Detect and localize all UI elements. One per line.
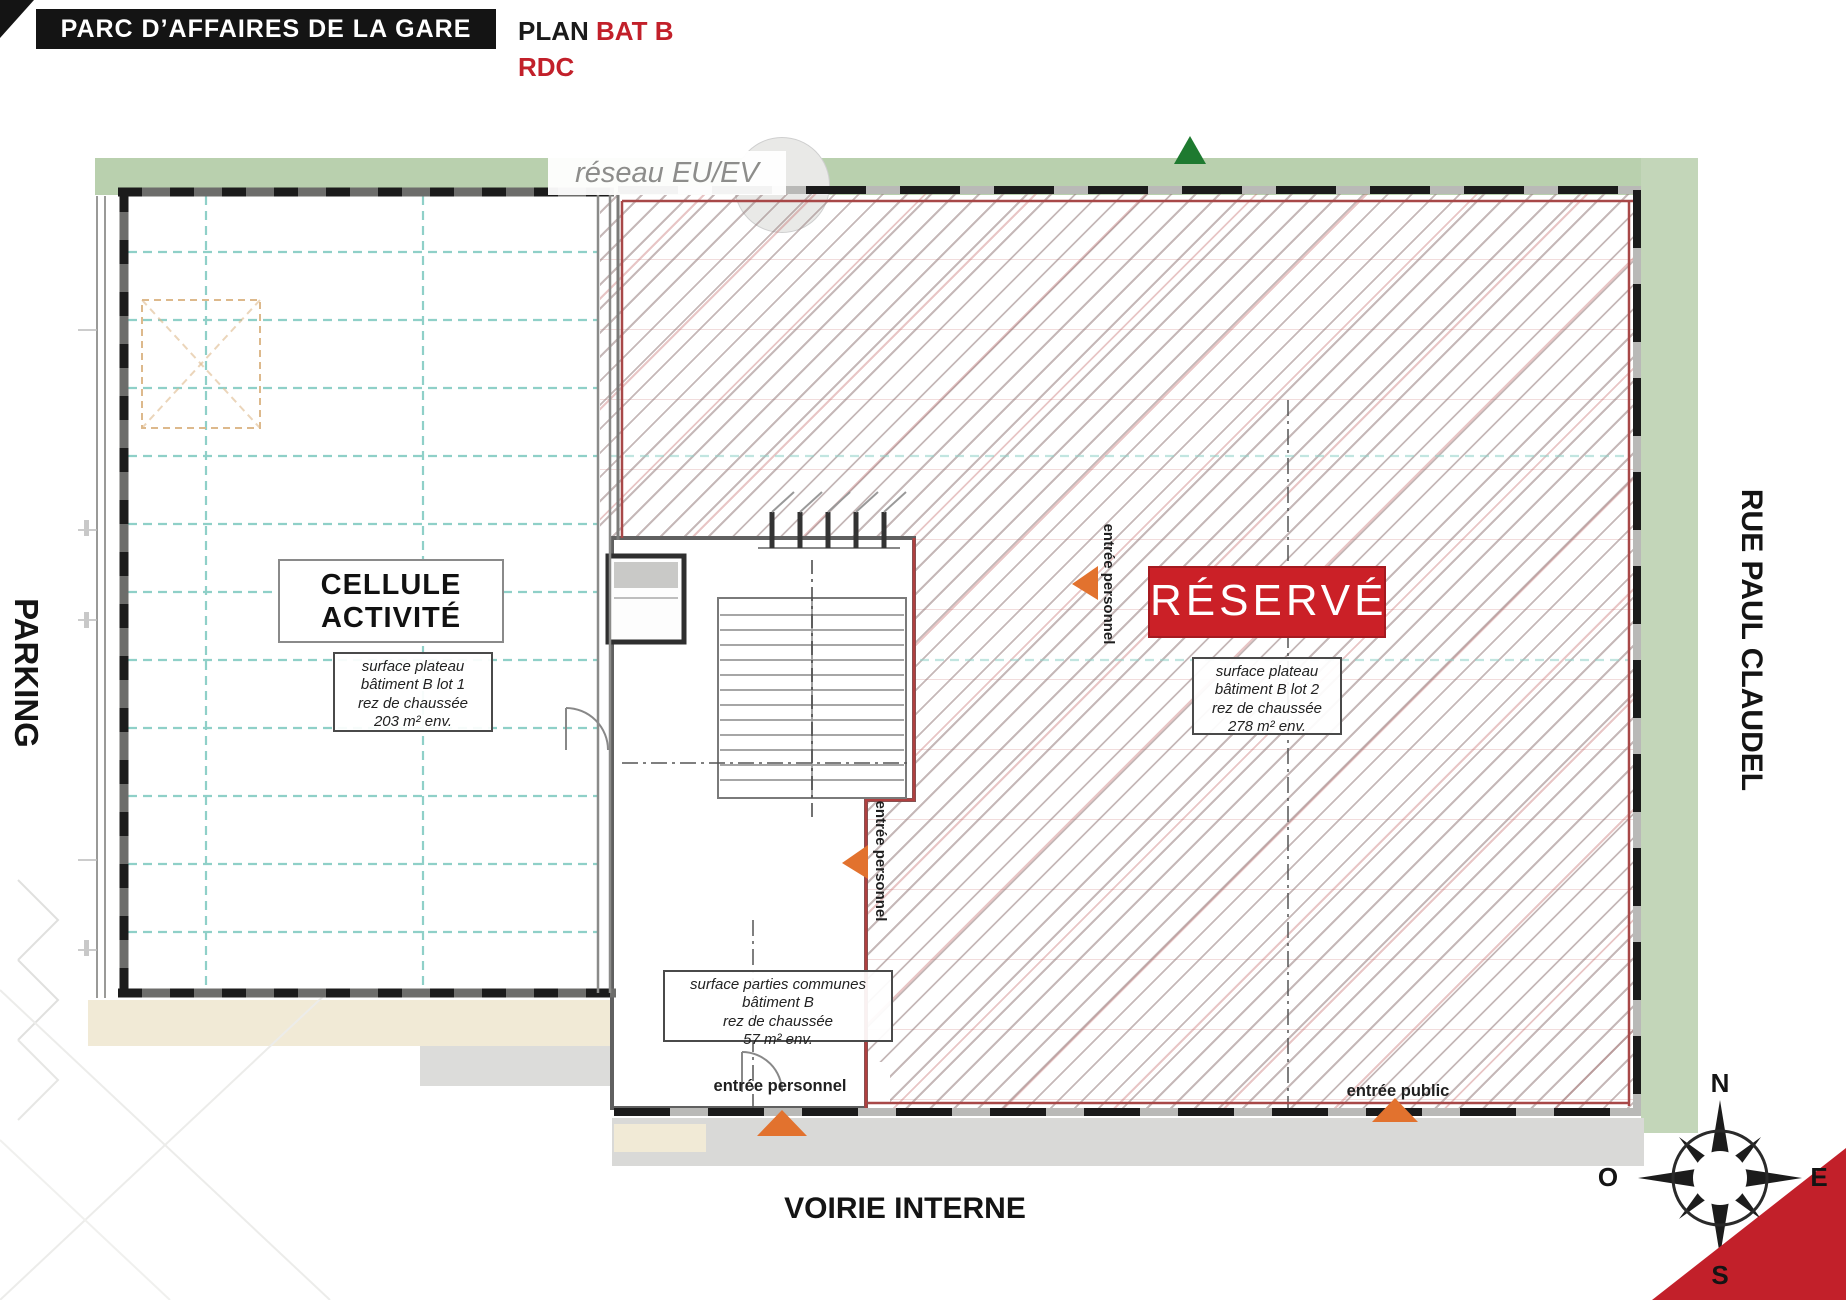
lot2-surface-line: rez de chaussée <box>1194 700 1340 718</box>
level-label: RDC <box>518 52 574 83</box>
plan-title: PLAN BAT B <box>518 16 674 47</box>
lot2-reserved-badge: RÉSERVÉ <box>1148 566 1386 638</box>
pavement-step <box>420 1046 615 1086</box>
lot2-surface-line: surface plateau <box>1194 663 1340 681</box>
skylight-marker <box>142 300 260 428</box>
parking-marks <box>0 196 330 1300</box>
lot1-title-line2: ACTIVITÉ <box>280 602 502 635</box>
project-title-banner: PARC D’AFFAIRES DE LA GARE <box>36 9 496 49</box>
staircase <box>718 560 906 820</box>
compass-east: E <box>1801 1162 1837 1190</box>
lot1-surface-box: surface plateau bâtiment B lot 1 rez de … <box>333 652 493 732</box>
walkway-strip-left <box>88 1000 612 1046</box>
lot2-surface-box: surface plateau bâtiment B lot 2 rez de … <box>1192 657 1342 735</box>
plan-word: PLAN <box>518 16 596 46</box>
lot2-surface-line: 278 m² env. <box>1194 718 1340 736</box>
elevator-shaft <box>608 556 684 642</box>
lot1-surface-line: rez de chaussée <box>335 695 491 713</box>
commons-surface-line: surface parties communes <box>665 976 891 994</box>
dimension-mark <box>84 612 89 628</box>
entrance-label-staff-upper: entrée personnel <box>1091 512 1117 656</box>
street-label-parking: PARKING <box>11 575 45 771</box>
dimension-mark <box>84 940 89 956</box>
lot1-surface-line: surface plateau <box>335 658 491 676</box>
lot1-surface-line: 203 m² env. <box>335 713 491 731</box>
entrance-label-staff-lower: entrée personnel <box>863 789 889 933</box>
corner-triangle-topleft <box>0 0 34 38</box>
entrance-label-staff-bottom: entrée personnel <box>688 1077 872 1096</box>
compass-west: O <box>1590 1162 1626 1190</box>
sidewalk-strip <box>612 1118 1644 1166</box>
walkway-entrance <box>614 1124 706 1152</box>
lot1-title-line1: CELLULE <box>280 569 502 602</box>
lot2-surface-line: bâtiment B lot 2 <box>1194 681 1340 699</box>
landscape-strip-right <box>1641 158 1698 1133</box>
commons-surface-box: surface parties communes bâtiment B rez … <box>663 970 893 1042</box>
compass-south: S <box>1702 1260 1738 1288</box>
landscape-strip-top <box>95 158 1643 195</box>
lot1-title-box: CELLULE ACTIVITÉ <box>278 559 504 643</box>
street-label-rue-paul-claudel: RUE PAUL CLAUDEL <box>1734 481 1768 799</box>
commons-surface-line: 57 m² env. <box>665 1031 891 1049</box>
floor-plan-page: PARC D’AFFAIRES DE LA GARE PLAN BAT B RD… <box>0 0 1846 1300</box>
building-name: BAT B <box>596 16 674 46</box>
dimension-mark <box>84 520 89 536</box>
commons-surface-line: rez de chaussée <box>665 1013 891 1031</box>
network-label: réseau EU/EV <box>548 151 786 195</box>
lot1-surface-line: bâtiment B lot 1 <box>335 676 491 694</box>
entrance-label-public: entrée public <box>1316 1082 1480 1101</box>
street-label-voirie-interne: VOIRIE INTERNE <box>755 1192 1055 1226</box>
commons-surface-line: bâtiment B <box>665 994 891 1012</box>
compass-north: N <box>1702 1068 1738 1096</box>
